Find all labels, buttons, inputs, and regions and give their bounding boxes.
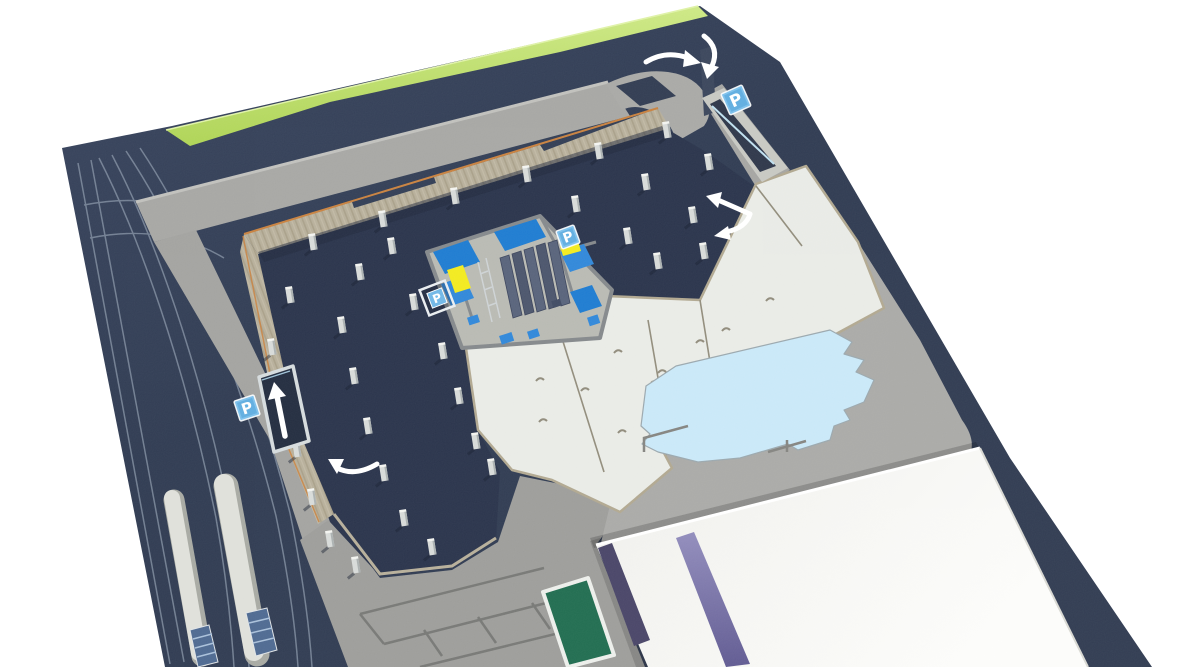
site-plan-canvas: Aerial 3D architectural rendering of an … — [0, 0, 1200, 667]
site-plan-rendering: Aerial 3D architectural rendering of an … — [0, 0, 1200, 667]
ground-texture-overlay — [0, 0, 1200, 667]
